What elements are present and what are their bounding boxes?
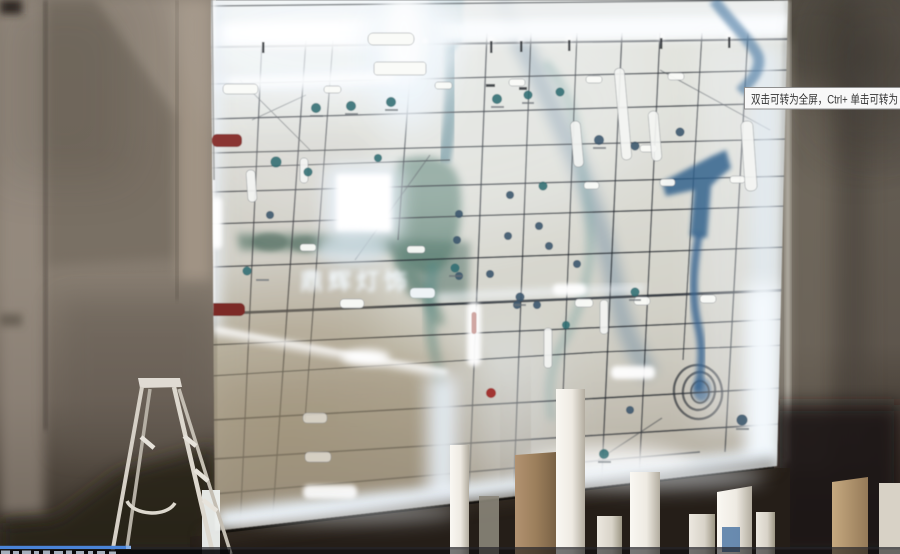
svg-text:鼎辉灯饰: 鼎辉灯饰: [300, 268, 412, 294]
svg-text:双击可转为全屏，Ctrl+ 单击可转为: 双击可转为全屏，Ctrl+ 单击可转为: [751, 92, 898, 107]
